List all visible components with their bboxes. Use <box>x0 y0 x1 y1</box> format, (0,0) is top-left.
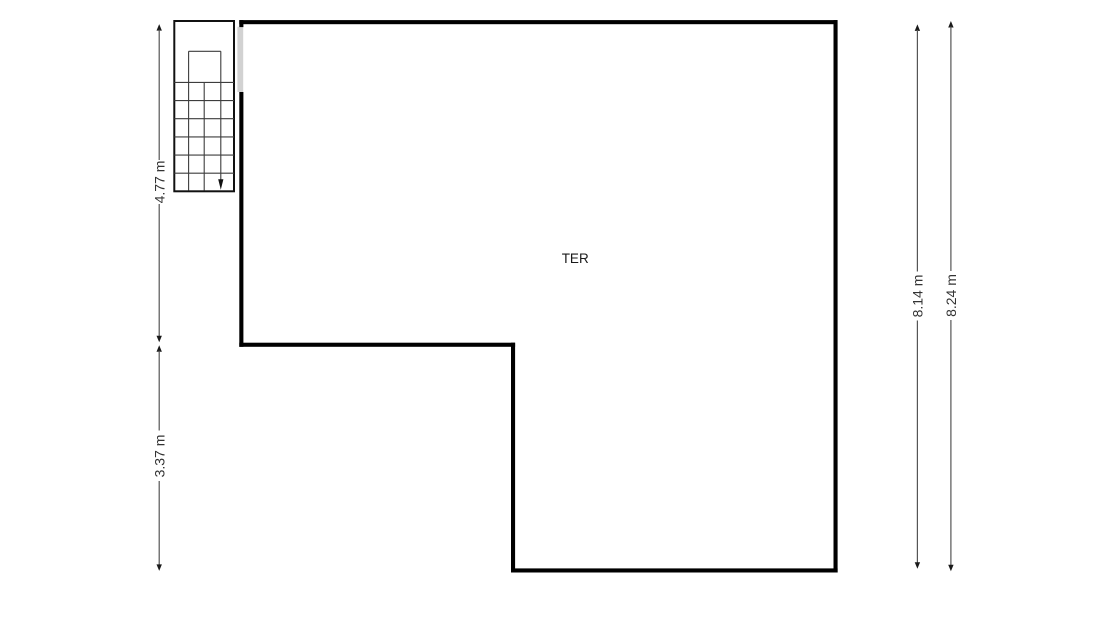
svg-text:TER: TER <box>562 251 589 266</box>
svg-text:8.14 m: 8.14 m <box>910 275 926 318</box>
svg-text:3.37 m: 3.37 m <box>151 435 167 478</box>
svg-text:8.24 m: 8.24 m <box>943 274 959 317</box>
svg-text:4.77 m: 4.77 m <box>151 161 167 204</box>
